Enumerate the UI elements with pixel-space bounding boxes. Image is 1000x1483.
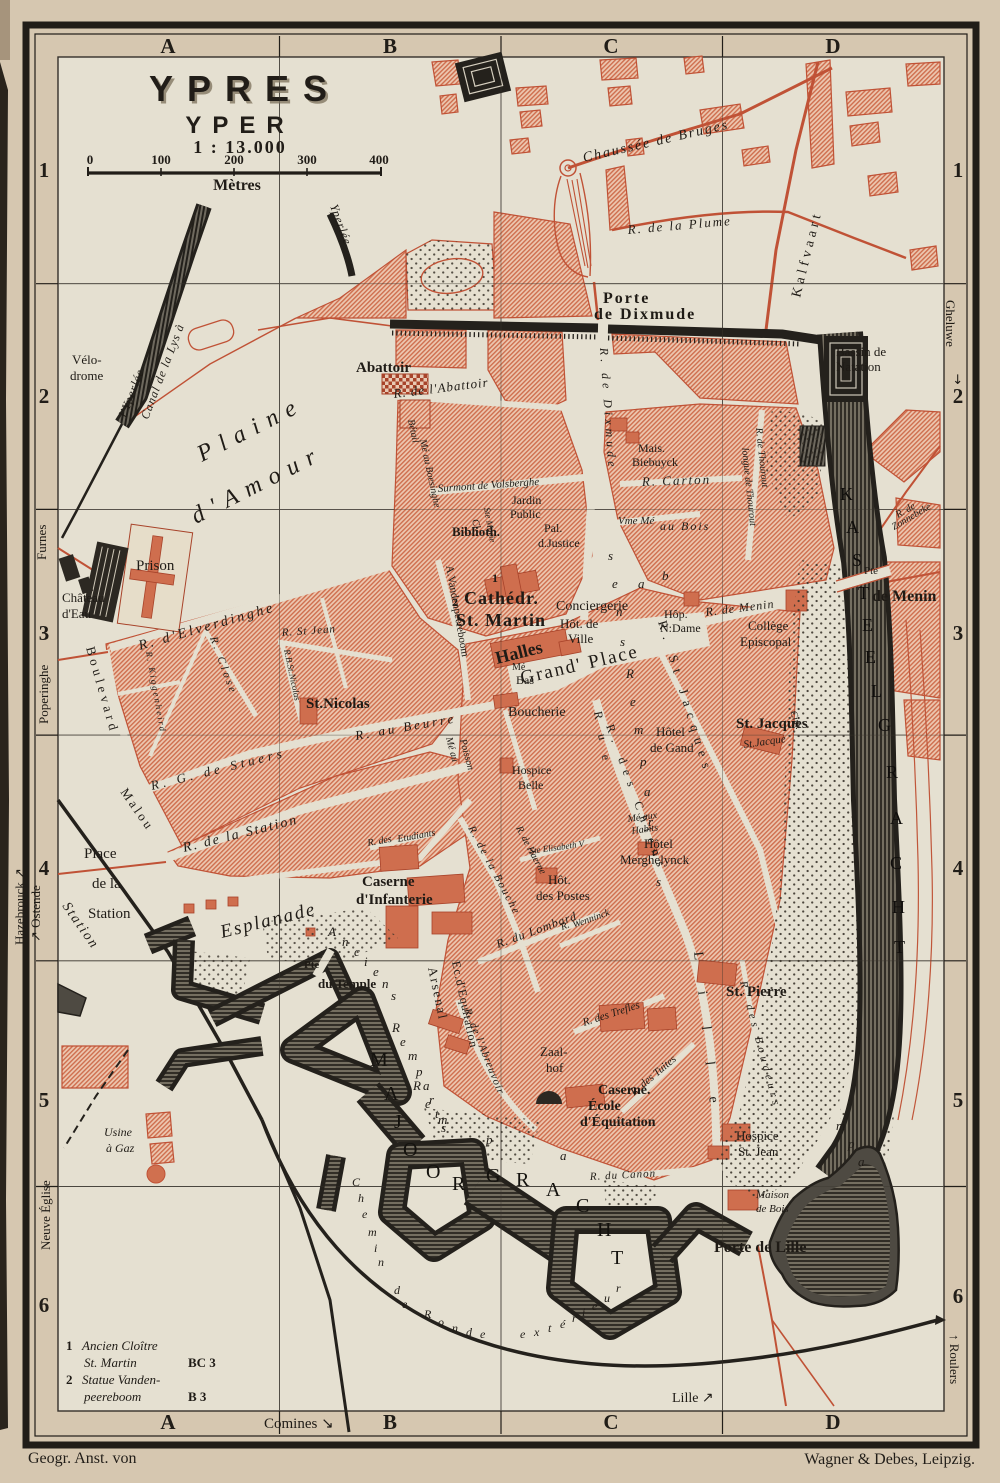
svg-text:hof: hof <box>546 1060 564 1075</box>
svg-text:Zaal-: Zaal- <box>540 1044 567 1059</box>
svg-text:e: e <box>630 694 636 709</box>
svg-text:R: R <box>886 762 898 782</box>
svg-text:Hospice: Hospice <box>736 1128 779 1143</box>
svg-text:G: G <box>486 1165 500 1187</box>
svg-text:Place: Place <box>84 846 117 862</box>
svg-text:4: 4 <box>953 856 964 880</box>
svg-text:C: C <box>603 34 618 58</box>
svg-text:n: n <box>378 1255 384 1269</box>
svg-text:C: C <box>603 1410 618 1434</box>
svg-text:d'Infanterie: d'Infanterie <box>356 892 433 908</box>
svg-text:J: J <box>394 1111 402 1133</box>
svg-text:Biebuyck: Biebuyck <box>632 455 678 469</box>
svg-text:R: R <box>452 1173 466 1195</box>
svg-text:Porte de Lille: Porte de Lille <box>714 1239 806 1256</box>
svg-text:Caserne: Caserne <box>362 874 415 890</box>
svg-text:p: p <box>485 1132 493 1147</box>
svg-text:a: a <box>423 1078 430 1093</box>
svg-text:C: C <box>890 853 902 873</box>
svg-text:4: 4 <box>39 856 50 880</box>
svg-text:S: S <box>852 550 862 570</box>
svg-text:i: i <box>582 1305 585 1319</box>
svg-text:e: e <box>362 1207 368 1221</box>
svg-text:5: 5 <box>39 1088 50 1112</box>
svg-text:A: A <box>890 808 903 828</box>
svg-text:p: p <box>847 1136 855 1151</box>
svg-text:Hôtel: Hôtel <box>644 836 673 851</box>
svg-text:s: s <box>656 874 661 889</box>
svg-text:Vme Mé: Vme Mé <box>618 515 655 527</box>
svg-text:Porte: Porte <box>603 290 650 307</box>
svg-text:O: O <box>426 1161 440 1183</box>
svg-text:Abattoir: Abattoir <box>356 360 411 376</box>
svg-text:de Dixmude: de Dixmude <box>594 306 696 323</box>
svg-text:Episcopal: Episcopal <box>740 634 792 649</box>
svg-text:e: e <box>425 1096 431 1111</box>
svg-text:D: D <box>825 1410 840 1434</box>
svg-text:H: H <box>597 1219 611 1241</box>
svg-text:C: C <box>352 1175 361 1189</box>
svg-text:des Postes: des Postes <box>536 888 590 903</box>
svg-text:au Bois: au Bois <box>660 519 710 533</box>
svg-text:de Bois: de Bois <box>756 1203 789 1215</box>
svg-text:Hôt.: Hôt. <box>548 872 571 887</box>
svg-text:h: h <box>358 1191 364 1205</box>
svg-text:400: 400 <box>369 152 389 167</box>
svg-text:Caserne.: Caserne. <box>598 1083 651 1098</box>
svg-text:Poperinghe: Poperinghe <box>36 665 51 724</box>
svg-text:e: e <box>400 1034 406 1049</box>
svg-text:Mètres: Mètres <box>213 177 261 194</box>
svg-text:de Menin: de Menin <box>872 588 937 605</box>
svg-text:R: R <box>412 1078 421 1093</box>
svg-text:u: u <box>604 1291 610 1305</box>
svg-text:R: R <box>516 1169 530 1191</box>
svg-text:Statue Vanden-: Statue Vanden- <box>82 1372 160 1387</box>
svg-text:3: 3 <box>953 621 964 645</box>
svg-text:K: K <box>840 484 853 504</box>
svg-text:m: m <box>408 1048 417 1063</box>
svg-text:200: 200 <box>224 152 244 167</box>
svg-text:Jardin: Jardin <box>512 493 541 507</box>
svg-text:s: s <box>608 548 613 563</box>
svg-text:YPRES: YPRES <box>149 68 341 109</box>
svg-text:YPER: YPER <box>185 112 294 139</box>
svg-text:drome: drome <box>70 368 103 383</box>
svg-text:a: a <box>858 1154 865 1169</box>
svg-text:e: e <box>373 964 379 979</box>
svg-text:St. Martin: St. Martin <box>84 1355 137 1370</box>
svg-text:T: T <box>611 1247 623 1269</box>
svg-text:m: m <box>368 1225 377 1239</box>
svg-text:e: e <box>480 1327 486 1341</box>
svg-text:e: e <box>520 1327 526 1341</box>
svg-text:2: 2 <box>66 1372 73 1387</box>
svg-text:300: 300 <box>297 152 317 167</box>
svg-text:a: a <box>638 576 645 591</box>
svg-text:peereboom: peereboom <box>83 1389 141 1404</box>
svg-text:St. Pierre: St. Pierre <box>726 984 787 1000</box>
svg-text:École: École <box>588 1097 621 1114</box>
svg-text:Pal.: Pal. <box>544 521 562 535</box>
svg-text:1: 1 <box>39 158 50 182</box>
svg-text:p: p <box>415 1064 423 1079</box>
svg-text:1: 1 <box>492 571 498 585</box>
svg-text:Wagner & Debes, Leipzig.: Wagner & Debes, Leipzig. <box>804 1451 975 1468</box>
svg-text:n: n <box>342 934 349 949</box>
svg-text:A: A <box>160 34 176 58</box>
svg-text:A: A <box>546 1179 561 1201</box>
svg-text:Hôtel: Hôtel <box>656 724 685 739</box>
svg-text:Maison: Maison <box>755 1189 790 1201</box>
svg-text:6: 6 <box>953 1284 964 1308</box>
svg-text:6: 6 <box>39 1293 50 1317</box>
svg-text:d'Eau: d'Eau <box>62 606 92 621</box>
svg-text:St. Jean: St. Jean <box>738 1144 779 1159</box>
svg-text:St.Nicolas: St.Nicolas <box>306 696 370 712</box>
svg-text:i: i <box>364 954 368 969</box>
svg-text:n: n <box>616 604 623 619</box>
svg-text:d'Équitation: d'Équitation <box>580 1113 656 1130</box>
svg-text:d: d <box>466 1325 473 1339</box>
svg-text:e: e <box>592 1299 598 1313</box>
svg-text:R: R <box>423 1307 432 1321</box>
svg-text:100: 100 <box>151 152 171 167</box>
svg-text:3: 3 <box>39 621 50 645</box>
svg-text:a: a <box>560 1148 567 1163</box>
svg-text:d.Justice: d.Justice <box>538 536 580 550</box>
svg-text:B: B <box>383 34 397 58</box>
svg-text:Neuve Église: Neuve Église <box>38 1180 53 1250</box>
svg-text:Pte: Pte <box>304 959 319 971</box>
svg-text:s: s <box>391 988 396 1003</box>
svg-text:Bassin de: Bassin de <box>836 344 886 359</box>
svg-text:Hôt. de: Hôt. de <box>560 616 599 631</box>
svg-text:t: t <box>652 844 656 859</box>
svg-text:Prison: Prison <box>136 558 175 574</box>
svg-text:Boucherie: Boucherie <box>508 705 566 720</box>
svg-text:a: a <box>644 784 651 799</box>
svg-text:L: L <box>871 681 882 701</box>
svg-text:Collège: Collège <box>748 618 789 633</box>
svg-text:i: i <box>374 1241 377 1255</box>
svg-text:Vélo-: Vélo- <box>72 352 102 367</box>
svg-text:é: é <box>560 1317 566 1331</box>
svg-text:2: 2 <box>452 595 458 609</box>
svg-text:d: d <box>394 1283 401 1297</box>
svg-text:Hospice: Hospice <box>512 763 551 777</box>
svg-text:du Temple: du Temple <box>318 976 376 991</box>
svg-text:A: A <box>384 1083 399 1105</box>
svg-text:A: A <box>327 924 336 939</box>
svg-text:Comines ↘: Comines ↘ <box>264 1416 334 1432</box>
svg-text:↗ Ostende: ↗ Ostende <box>28 885 43 942</box>
svg-text:e: e <box>612 576 618 591</box>
svg-text:à Gaz: à Gaz <box>106 1141 135 1155</box>
svg-text:Cathédr.: Cathédr. <box>464 588 539 608</box>
svg-text:o: o <box>438 1315 444 1329</box>
svg-text:A: A <box>160 1410 176 1434</box>
svg-text:T: T <box>858 583 869 603</box>
svg-text:Furnes: Furnes <box>34 525 49 560</box>
svg-text:Pte: Pte <box>864 565 878 577</box>
svg-text:R. Carton: R. Carton <box>641 472 712 489</box>
svg-text:G: G <box>878 715 891 735</box>
svg-text:E: E <box>862 615 873 635</box>
svg-text:O: O <box>403 1139 417 1161</box>
svg-text:s: s <box>620 634 625 649</box>
svg-text:BC 3: BC 3 <box>188 1355 216 1370</box>
svg-text:C: C <box>576 1195 589 1217</box>
svg-text:M: M <box>370 1049 388 1071</box>
svg-text:Natation: Natation <box>836 359 881 374</box>
svg-text:H: H <box>892 897 905 917</box>
svg-text:c: c <box>354 944 360 959</box>
svg-text:Mais.: Mais. <box>638 441 665 455</box>
svg-text:T: T <box>894 937 905 957</box>
svg-text:b: b <box>662 568 669 583</box>
svg-text:Château: Château <box>62 590 105 605</box>
svg-text:2: 2 <box>953 384 964 408</box>
svg-text:St. Martin: St. Martin <box>456 610 546 630</box>
svg-text:m: m <box>634 722 643 737</box>
svg-text:A: A <box>846 517 859 537</box>
svg-text:Public: Public <box>510 507 541 521</box>
svg-text:x: x <box>533 1325 540 1339</box>
svg-text:D: D <box>825 34 840 58</box>
svg-text:2: 2 <box>39 384 50 408</box>
svg-text:de Gand: de Gand <box>650 740 694 755</box>
svg-text:Geogr. Anst. von: Geogr. Anst. von <box>28 1450 136 1467</box>
svg-text:r: r <box>572 1311 577 1325</box>
svg-text:Hazebrouck ↗: Hazebrouck ↗ <box>12 868 27 945</box>
svg-text:Ville: Ville <box>568 631 593 646</box>
svg-text:Gheluwe: Gheluwe <box>943 300 958 347</box>
svg-text:B 3: B 3 <box>188 1389 207 1404</box>
svg-text:Belle: Belle <box>518 778 543 792</box>
svg-text:Usine: Usine <box>104 1125 133 1139</box>
svg-text:R: R <box>391 1020 400 1035</box>
svg-text:p: p <box>639 754 647 769</box>
svg-text:e: e <box>402 1297 408 1311</box>
svg-text:Station: Station <box>88 906 131 922</box>
svg-text:R: R <box>625 666 634 681</box>
svg-text:m: m <box>836 1118 845 1133</box>
svg-text:5: 5 <box>953 1088 964 1112</box>
svg-text:1: 1 <box>953 158 964 182</box>
svg-text:m: m <box>438 1112 447 1127</box>
svg-text:Ancien Cloître: Ancien Cloître <box>81 1338 158 1353</box>
svg-text:↑ Roulers: ↑ Roulers <box>947 1334 962 1384</box>
svg-text:n: n <box>452 1321 458 1335</box>
svg-text:E: E <box>865 647 876 667</box>
svg-text:de la: de la <box>92 876 121 892</box>
svg-text:1: 1 <box>66 1338 73 1353</box>
svg-text:B: B <box>383 1410 397 1434</box>
svg-text:Lille ↗: Lille ↗ <box>672 1391 714 1406</box>
svg-text:n: n <box>382 976 389 991</box>
svg-text:0: 0 <box>87 152 94 167</box>
svg-text:r: r <box>616 1281 621 1295</box>
